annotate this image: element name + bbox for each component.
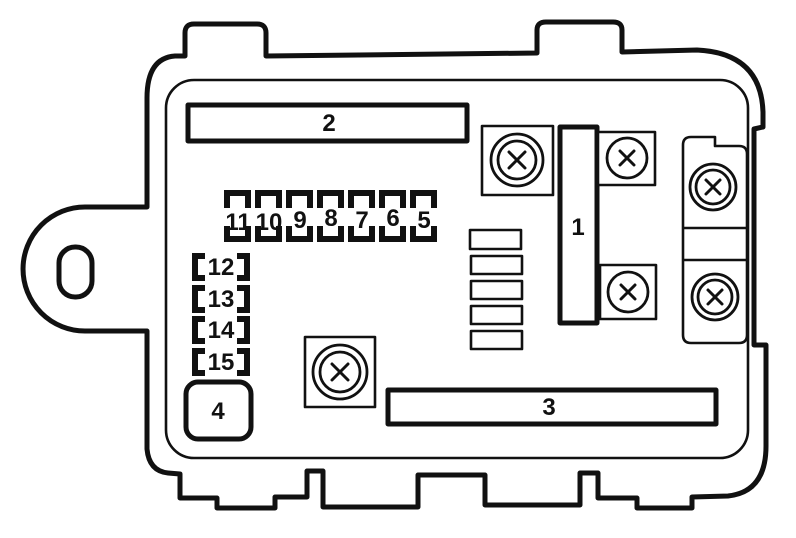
fuse-label: 9: [293, 207, 306, 234]
diagram-canvas: 2 1 3 4 11 10 9 8: [0, 0, 796, 538]
fuse-label: 5: [417, 207, 430, 234]
fuse-box-diagram: 2 1 3 4 11 10 9 8: [0, 0, 796, 538]
fuse-label: 11: [225, 209, 250, 236]
fuse-label: 10: [256, 209, 283, 236]
screw-terminal-block1-upper: [598, 132, 655, 185]
screw-terminal-right-upper: [690, 164, 736, 210]
block-2: 2: [188, 105, 467, 141]
fuse-label: 12: [208, 254, 235, 281]
blade-slot: [471, 256, 522, 274]
block-1-label: 1: [571, 214, 584, 241]
block-2-label: 2: [322, 110, 335, 137]
fuse-label: 15: [208, 349, 235, 376]
blade-slot: [471, 331, 522, 349]
screw-terminal-right-lower: [692, 274, 738, 320]
block-1: 1: [560, 127, 597, 323]
fuse-label: 6: [386, 205, 399, 232]
fuse-label: 13: [208, 286, 235, 313]
mounting-hole-icon: [59, 247, 92, 297]
terminal-strip-right: [683, 137, 747, 343]
screw-terminal-top-middle: [482, 126, 553, 195]
connector-blade-stack: [470, 230, 522, 349]
fuse-label: 8: [324, 205, 337, 232]
block-3-label: 3: [542, 394, 555, 421]
blade-slot: [471, 281, 522, 299]
blade-slot: [470, 230, 521, 249]
screw-terminal-block1-lower: [600, 265, 656, 319]
blade-slot: [471, 306, 522, 324]
block-3: 3: [388, 390, 716, 424]
fuse-label: 14: [208, 317, 235, 344]
screw-terminal-bottom-left: [305, 337, 375, 407]
fuse-label: 7: [355, 207, 368, 234]
block-4: 4: [186, 382, 251, 439]
block-4-label: 4: [211, 398, 225, 425]
